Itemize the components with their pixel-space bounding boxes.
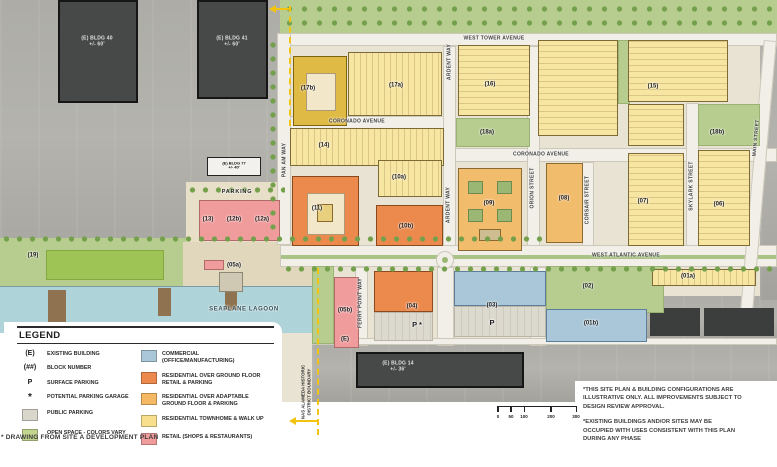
notes-panel: *THIS SITE PLAN & BUILDING CONFIGURATION… xyxy=(575,381,777,467)
block-03-surface-parking-label: P xyxy=(489,319,494,327)
block-09-courtyard-1 xyxy=(468,181,483,194)
legend-item-block-number: (##) BLOCK NUMBER xyxy=(17,364,141,372)
street-label-ferry-point: FERRY POINT WAY xyxy=(358,278,364,328)
scale-num-0: 0 xyxy=(497,414,500,419)
plaza-05a-retail xyxy=(204,260,224,270)
block-09-courtyard-2 xyxy=(497,181,512,194)
legend-item-res-adaptable: RESIDENTIAL OVER ADAPTABLE GROUND FLOOR … xyxy=(141,393,269,409)
existing-building-14-label: (E) BLDG 14 +/- 36' xyxy=(382,362,413,373)
block-01b-label: (01b) xyxy=(584,321,598,328)
legend-label-parking-garage: POTENTIAL PARKING GARAGE xyxy=(47,393,129,401)
block-19-label: (19) xyxy=(28,253,39,260)
block-08-label: (08) xyxy=(559,196,570,203)
scale-num-300: 300 xyxy=(572,414,580,419)
legend-label-existing: EXISTING BUILDING xyxy=(47,350,100,358)
block-15-east-shape xyxy=(628,40,728,102)
street-label-ardent-south: ARDENT WAY xyxy=(446,187,452,223)
block-17b-label: (17b) xyxy=(301,86,315,93)
block-11-label: (11) xyxy=(312,206,322,213)
block-09-courtyard-4 xyxy=(497,209,512,222)
existing-building-40-label: (E) BLDG 40 +/- 60' xyxy=(81,37,112,48)
atlantic-median xyxy=(281,255,776,259)
existing-building-40 xyxy=(58,0,138,103)
trees-pan-am xyxy=(268,38,278,238)
block-03-shape xyxy=(454,271,546,306)
historic-boundary-line-north xyxy=(289,6,291,126)
historic-boundary-arrow-north xyxy=(269,5,276,13)
existing-building-14-height: +/- 36' xyxy=(382,367,413,373)
street-label-coronado-west: CORONADO AVENUE xyxy=(329,119,385,125)
street-label-coronado-east: CORONADO AVENUE xyxy=(513,152,569,158)
note-2: *EXISTING BUILDINGS AND/OR SITES MAY BE … xyxy=(583,418,743,443)
block-14-label: (14) xyxy=(319,143,330,150)
block-04-parking-lot xyxy=(374,312,433,341)
historic-boundary-label-line2: DISTRICT BOUNDARY xyxy=(306,365,312,419)
street-label-ardent-north: ARDENT WAY xyxy=(447,44,453,80)
legend-color-column: COMMERCIAL (OFFICE/MANUFACTURING) RESIDE… xyxy=(141,350,269,451)
street-label-skylark: SKYLARK STREET xyxy=(689,161,695,210)
block-13-label: (13) xyxy=(203,217,214,224)
legend-item-commercial: COMMERCIAL (OFFICE/MANUFACTURING) xyxy=(141,350,269,366)
scale-tick-200 xyxy=(550,406,552,412)
street-label-west-tower: WEST TOWER AVENUE xyxy=(463,36,524,42)
block-11-courtyard xyxy=(307,193,345,235)
historic-boundary-label: NAS ALAMEDA HISTORIC DISTRICT BOUNDARY xyxy=(301,365,312,419)
legend-item-surface-parking: P SURFACE PARKING xyxy=(17,379,141,387)
drawing-source-footnote: * DRAWING FROM SITE A DEVELOPMENT PLAN xyxy=(1,434,158,441)
scale-tick-100 xyxy=(524,406,526,412)
block-02-shape xyxy=(546,266,664,313)
legend-item-retail: RETAIL (SHOPS & RESTAURANTS) xyxy=(141,433,269,445)
existing-building-41-height: +/- 60' xyxy=(216,42,247,48)
street-south-connector-1 xyxy=(437,267,454,346)
block-12a-label: (12a) xyxy=(255,217,269,224)
legend-symbol-parking-garage: * xyxy=(17,393,43,403)
block-02-label: (02) xyxy=(583,284,594,291)
public-parking-swatch xyxy=(22,409,38,421)
legend-label-public-parking: PUBLIC PARKING xyxy=(47,409,93,417)
warehouse-b xyxy=(704,308,774,336)
site-plan: NAS ALAMEDA HISTORIC DISTRICT BOUNDARY W… xyxy=(0,0,777,467)
legend-symbol-block-number: (##) xyxy=(17,364,43,371)
historic-boundary-line-south xyxy=(317,268,319,435)
block-05b-existing-label: (E) xyxy=(341,337,349,344)
legend-item-res-retail: RESIDENTIAL OVER GROUND FLOOR RETAIL & P… xyxy=(141,372,269,388)
historic-boundary-arrow-tail-south xyxy=(296,420,318,422)
existing-building-41 xyxy=(197,0,268,99)
existing-building-40-height: +/- 60' xyxy=(81,42,112,48)
existing-building-41-label: (E) BLDG 41 +/- 60' xyxy=(216,37,247,48)
legend-label-retail: RETAIL (SHOPS & RESTAURANTS) xyxy=(162,433,269,441)
block-04-label: (04) xyxy=(407,304,418,311)
historic-boundary-arrow-tail-north xyxy=(276,8,290,10)
block-12b-label: (12b) xyxy=(227,217,241,224)
street-label-pan-am: PAN AM WAY xyxy=(282,143,288,177)
block-10a-label: (10a) xyxy=(392,175,406,182)
legend-item-existing: (E) EXISTING BUILDING xyxy=(17,350,141,358)
res-adaptable-swatch xyxy=(141,393,157,405)
pier-east xyxy=(158,288,171,316)
street-label-west-atlantic: WEST ATLANTIC AVENUE xyxy=(592,253,660,259)
legend-label-block-number: BLOCK NUMBER xyxy=(47,364,91,372)
block-18a-label: (18a) xyxy=(480,130,494,137)
block-09-courtyard-3 xyxy=(468,209,483,222)
existing-building-77-height: +/- 40' xyxy=(222,166,245,170)
block-08-shape xyxy=(546,163,583,243)
block-10a-shape xyxy=(378,160,442,197)
existing-building-77-label: (E) BLDG 77 +/- 40' xyxy=(222,162,245,171)
legend: LEGEND (E) EXISTING BUILDING (##) BLOCK … xyxy=(4,322,282,446)
block-03-label: (03) xyxy=(487,303,498,310)
block-06-label: (06) xyxy=(714,202,725,209)
legend-label-townhome: RESIDENTIAL TOWNHOME & WALK UP xyxy=(162,415,269,423)
legend-symbol-existing: (E) xyxy=(17,350,43,357)
scale-num-200: 200 xyxy=(547,414,555,419)
note-1: *THIS SITE PLAN & BUILDING CONFIGURATION… xyxy=(583,386,743,411)
block-15-south-shape xyxy=(628,104,684,146)
block-04-shape xyxy=(374,271,433,312)
scale-num-50: 50 xyxy=(508,414,513,419)
block-18b-shape xyxy=(698,104,760,146)
block-15-west-shape xyxy=(538,40,618,136)
block-01a-label: (01a) xyxy=(681,274,695,281)
block-03-parking-lot xyxy=(454,306,546,337)
block-10b-label: (10b) xyxy=(399,224,413,231)
block-07-label: (07) xyxy=(638,199,649,206)
block-05b-label: (05b) xyxy=(338,308,352,315)
legend-title: LEGEND xyxy=(17,326,274,344)
historic-boundary-arrow-south xyxy=(289,417,296,425)
commercial-swatch xyxy=(141,350,157,362)
block-16-label: (16) xyxy=(485,82,496,89)
block-16-shape xyxy=(458,45,530,116)
promenade-lawn xyxy=(46,250,164,280)
scale-tick-300 xyxy=(576,406,578,412)
pier-west xyxy=(48,290,66,326)
block-17a-label: (17a) xyxy=(389,83,403,90)
existing-building-14 xyxy=(356,352,524,388)
scale-tick-0 xyxy=(497,406,499,412)
legend-swatch-public-parking-wrap xyxy=(17,409,43,423)
parking-apron-label: PARKING xyxy=(222,189,253,195)
block-18b-label: (18b) xyxy=(710,130,724,137)
trees-top-band xyxy=(282,2,775,32)
legend-label-res-retail: RESIDENTIAL OVER GROUND FLOOR RETAIL & P… xyxy=(162,372,269,388)
street-label-orion: ORION STREET xyxy=(530,167,536,208)
block-09-label: (09) xyxy=(484,201,495,208)
scale-bar: 0 50 100 200 300 xyxy=(497,404,577,424)
block-06-shape xyxy=(698,150,750,246)
block-05a-label: (05a) xyxy=(227,263,241,270)
legend-item-townhome: RESIDENTIAL TOWNHOME & WALK UP xyxy=(141,415,269,427)
legend-item-parking-garage: * POTENTIAL PARKING GARAGE xyxy=(17,393,141,403)
scale-tick-50 xyxy=(510,406,512,412)
block-15-label: (15) xyxy=(648,84,659,91)
townhome-swatch xyxy=(141,415,157,427)
scale-bar-line xyxy=(497,406,577,407)
historic-boundary-label-line1: NAS ALAMEDA HISTORIC xyxy=(301,365,307,419)
legend-label-commercial: COMMERCIAL (OFFICE/MANUFACTURING) xyxy=(162,350,269,366)
res-retail-swatch xyxy=(141,372,157,384)
street-label-corsair: CORSAIR STREET xyxy=(585,176,591,224)
legend-symbol-surface-parking: P xyxy=(17,379,43,386)
scale-num-100: 100 xyxy=(520,414,528,419)
trees-west-atlantic xyxy=(282,263,775,272)
legend-label-surface-parking: SURFACE PARKING xyxy=(47,379,99,387)
legend-item-public-parking: PUBLIC PARKING xyxy=(17,409,141,423)
green-strip-ferry xyxy=(312,266,334,344)
legend-label-res-adaptable: RESIDENTIAL OVER ADAPTABLE GROUND FLOOR … xyxy=(162,393,269,409)
ferry-terminal xyxy=(219,272,243,292)
seaplane-lagoon-label: SEAPLANE LAGOON xyxy=(209,307,279,314)
block-07-shape xyxy=(628,153,684,246)
block-04-parking-garage-label: P * xyxy=(412,321,422,329)
